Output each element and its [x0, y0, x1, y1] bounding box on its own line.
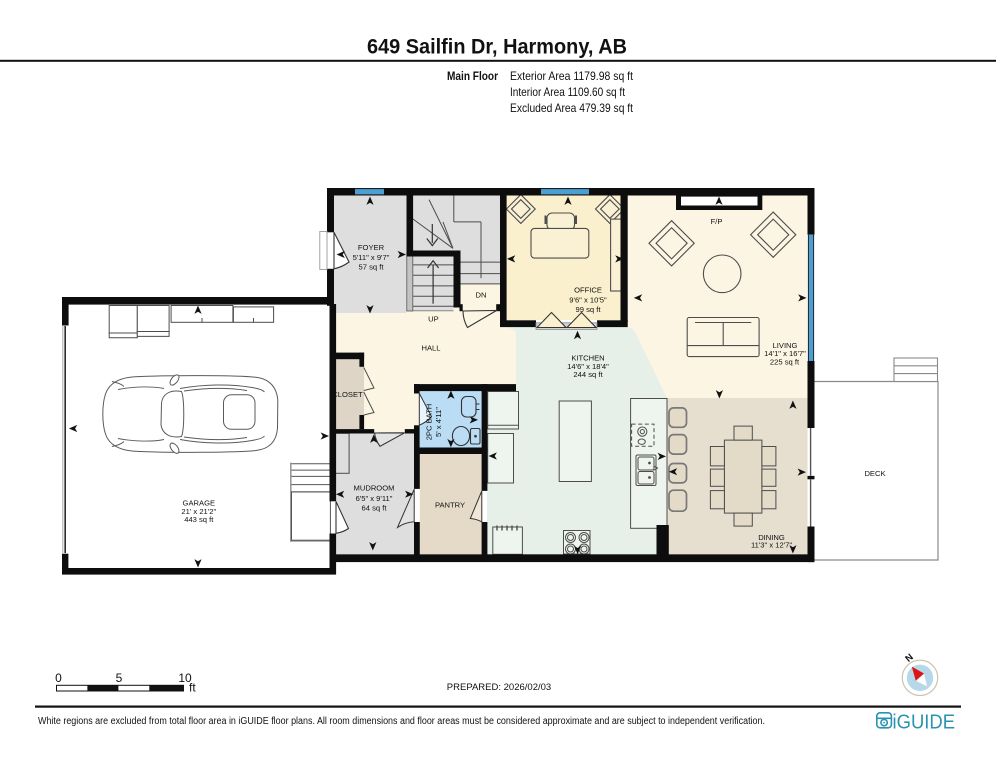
svg-text:GARAGE: GARAGE	[183, 499, 216, 508]
svg-text:Interior Area 1109.60 sq ft: Interior Area 1109.60 sq ft	[510, 85, 626, 99]
svg-text:DN: DN	[476, 291, 487, 300]
svg-text:Main Floor: Main Floor	[447, 69, 498, 83]
svg-text:White regions are excluded fro: White regions are excluded from total fl…	[38, 716, 765, 727]
svg-text:PANTRY: PANTRY	[435, 501, 465, 510]
svg-text:2PC BATH: 2PC BATH	[425, 404, 434, 441]
svg-text:9'6" x 10'5": 9'6" x 10'5"	[569, 296, 607, 305]
svg-text:DECK: DECK	[864, 469, 885, 478]
svg-text:HALL: HALL	[422, 344, 441, 353]
svg-text:FOYER: FOYER	[358, 243, 385, 252]
svg-text:5' x 4'11": 5' x 4'11"	[434, 407, 443, 437]
svg-text:6'5" x 9'11": 6'5" x 9'11"	[356, 494, 393, 503]
svg-text:57 sq ft: 57 sq ft	[359, 263, 385, 272]
svg-text:UP: UP	[428, 315, 439, 324]
svg-text:5'11" x 9'7": 5'11" x 9'7"	[353, 253, 390, 262]
svg-text:225 sq ft: 225 sq ft	[770, 357, 800, 366]
svg-text:5: 5	[116, 671, 123, 685]
svg-text:ft: ft	[189, 681, 196, 695]
svg-text:OFFICE: OFFICE	[574, 286, 602, 295]
svg-text:Exterior Area 1179.98 sq ft: Exterior Area 1179.98 sq ft	[510, 69, 634, 83]
svg-text:443 sq ft: 443 sq ft	[184, 515, 214, 524]
svg-text:CLOSET: CLOSET	[332, 390, 363, 399]
svg-text:MUDROOM: MUDROOM	[354, 483, 395, 492]
svg-text:0: 0	[55, 671, 62, 685]
svg-text:iGUIDE: iGUIDE	[893, 710, 956, 733]
svg-text:F/P: F/P	[711, 217, 723, 226]
svg-text:244 sq ft: 244 sq ft	[573, 370, 603, 379]
svg-text:11'3" x 12'7": 11'3" x 12'7"	[751, 541, 792, 550]
svg-text:Excluded Area 479.39 sq ft: Excluded Area 479.39 sq ft	[510, 101, 634, 115]
svg-text:99 sq ft: 99 sq ft	[576, 305, 602, 314]
svg-text:64 sq ft: 64 sq ft	[362, 504, 388, 513]
svg-text:649 Sailfin Dr, Harmony, AB: 649 Sailfin Dr, Harmony, AB	[367, 36, 627, 59]
svg-text:PREPARED: 2026/02/03: PREPARED: 2026/02/03	[447, 682, 551, 693]
